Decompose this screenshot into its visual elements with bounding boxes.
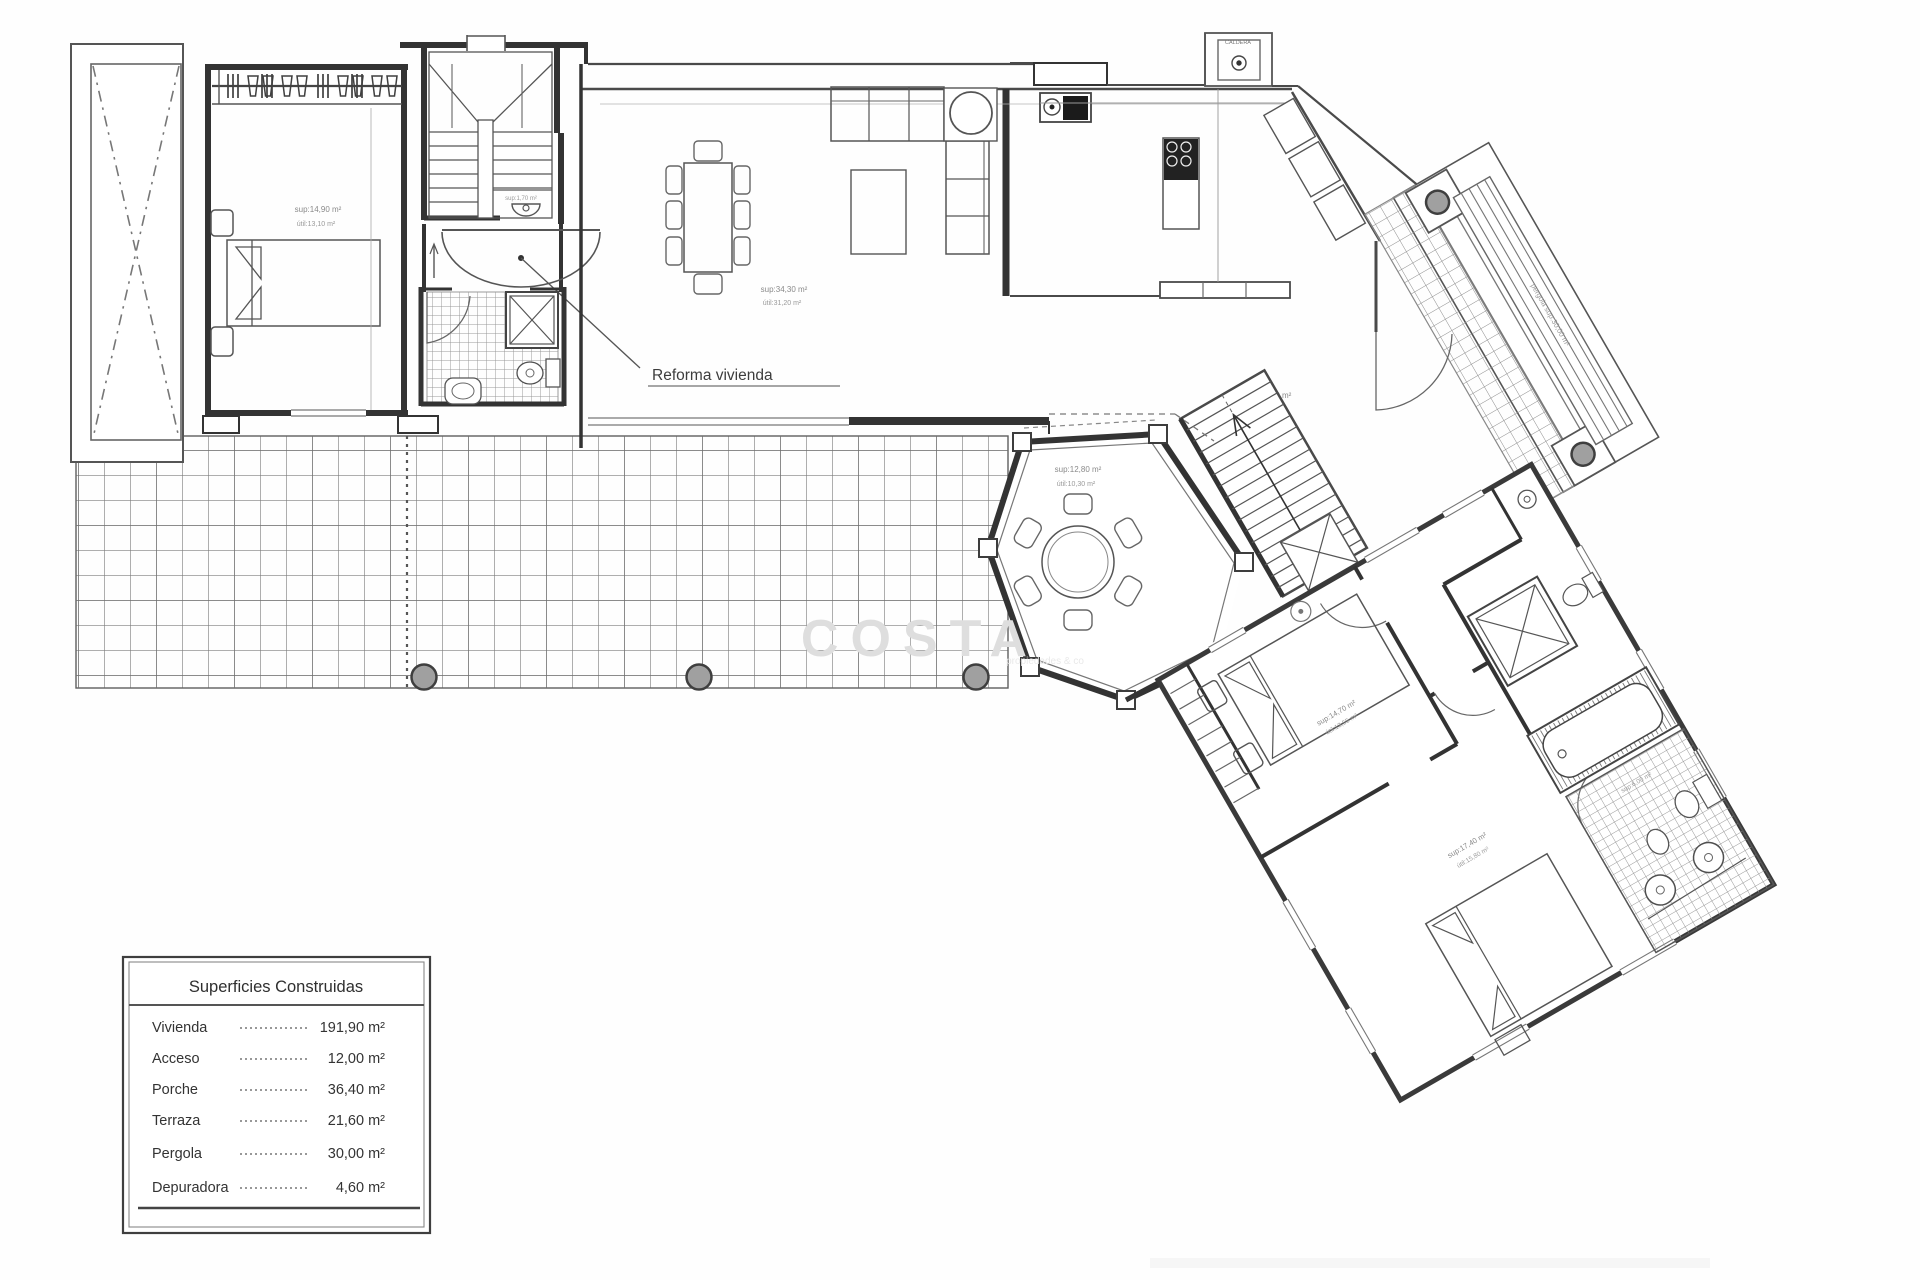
svg-text:21,60 m²: 21,60 m² bbox=[328, 1113, 385, 1129]
svg-text:sup:14,90 m²: sup:14,90 m² bbox=[295, 205, 342, 214]
svg-text:Depuradora: Depuradora bbox=[152, 1180, 230, 1196]
svg-text:útil:13,10 m²: útil:13,10 m² bbox=[297, 221, 336, 228]
svg-text:Superficies Construidas: Superficies Construidas bbox=[189, 978, 363, 996]
svg-text:sup:12,80 m²: sup:12,80 m² bbox=[1055, 465, 1102, 474]
svg-text:COSTA: COSTA bbox=[801, 610, 1039, 668]
svg-text:Terraza: Terraza bbox=[152, 1113, 201, 1129]
svg-text:Acceso: Acceso bbox=[152, 1051, 200, 1067]
svg-text:36,40 m²: 36,40 m² bbox=[328, 1082, 385, 1098]
svg-text:CALDERA: CALDERA bbox=[1225, 40, 1251, 46]
svg-text:Reforma vivienda: Reforma vivienda bbox=[652, 367, 773, 384]
svg-text:4,60 m²: 4,60 m² bbox=[336, 1180, 385, 1196]
svg-text:Vivienda: Vivienda bbox=[152, 1020, 208, 1036]
svg-text:sup:1,70 m²: sup:1,70 m² bbox=[505, 196, 537, 202]
svg-text:útil:10,30 m²: útil:10,30 m² bbox=[1057, 481, 1096, 488]
svg-text:sup:34,30 m²: sup:34,30 m² bbox=[761, 285, 808, 294]
svg-text:Pergola: Pergola bbox=[152, 1146, 203, 1162]
svg-text:191,90 m²: 191,90 m² bbox=[320, 1020, 385, 1036]
svg-text:propiedades & co: propiedades & co bbox=[1006, 656, 1084, 667]
svg-text:30,00 m²: 30,00 m² bbox=[328, 1146, 385, 1162]
svg-text:útil:31,20 m²: útil:31,20 m² bbox=[763, 300, 802, 307]
svg-text:12,00 m²: 12,00 m² bbox=[328, 1051, 385, 1067]
svg-text:Porche: Porche bbox=[152, 1082, 198, 1098]
